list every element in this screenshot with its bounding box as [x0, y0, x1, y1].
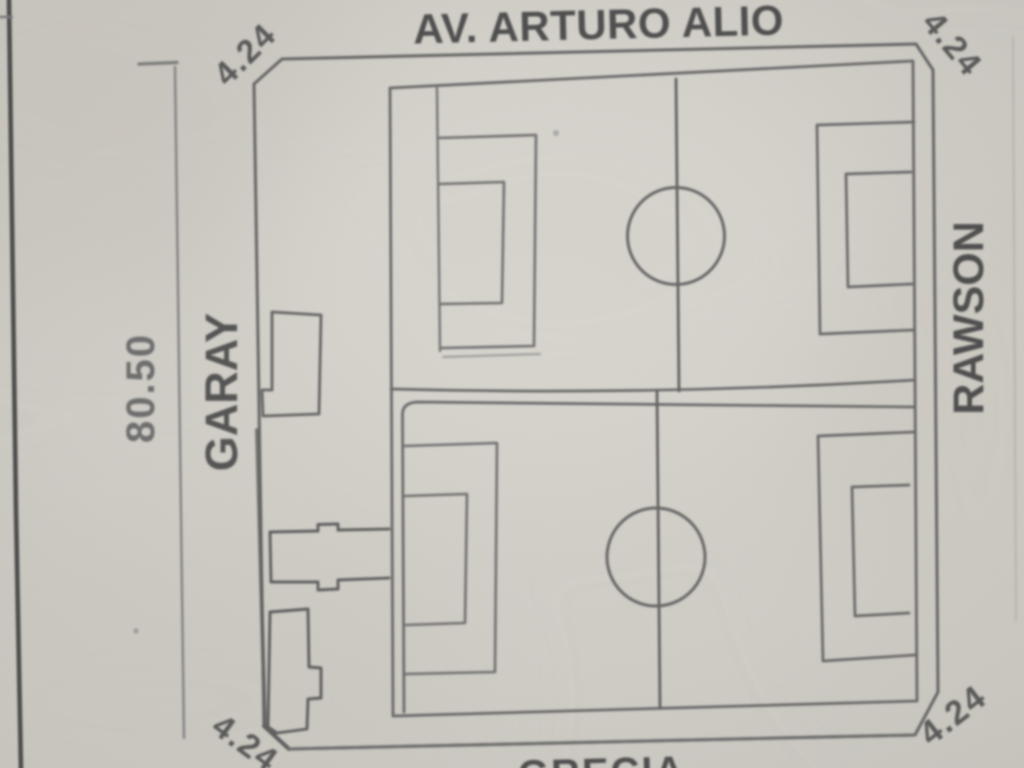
svg-text:GARAY: GARAY [196, 313, 247, 471]
svg-text:80.50: 80.50 [119, 333, 163, 443]
svg-text:AV. ARTURO ALIO: AV. ARTURO ALIO [413, 0, 785, 53]
svg-text:GRECIA: GRECIA [517, 749, 686, 768]
svg-text:RAWSON: RAWSON [945, 221, 993, 415]
